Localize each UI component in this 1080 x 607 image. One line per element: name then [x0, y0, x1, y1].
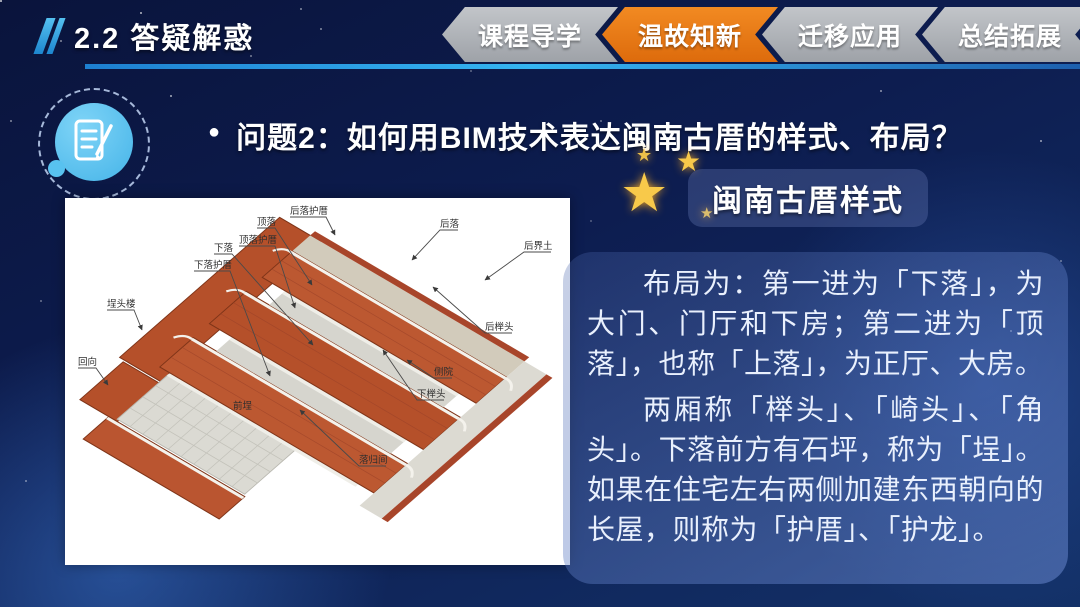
- figure-label: 下落: [214, 242, 234, 254]
- description-paragraph: 两厢称「榉头」、「崎头」、「角头」。下落前方有石坪，称为「埕」。如果在住宅左右两…: [587, 390, 1044, 550]
- figure-label: 后榉头: [485, 321, 514, 333]
- bullet-icon: ●: [208, 121, 220, 144]
- tab-summary-expansion[interactable]: 总结拓展: [922, 7, 1080, 62]
- courtyard-house-model: [65, 213, 557, 565]
- starfield-decoration: [0, 0, 2, 2]
- layout-description-panel: 布局为：第一进为「下落」，为大门、门厅和下房；第二进为「顶落」，也称「上落」，为…: [563, 252, 1068, 584]
- leader-line: [107, 310, 142, 330]
- description-paragraph: 布局为：第一进为「下落」，为大门、门厅和下房；第二进为「顶落」，也称「上落」，为…: [587, 264, 1044, 384]
- orbit-dot: [48, 160, 65, 177]
- tab-transfer-application[interactable]: 迁移应用: [762, 7, 938, 62]
- title-slash-icon: [38, 18, 64, 54]
- note-pencil-icon: [38, 88, 150, 200]
- figure-label: 下榉头: [417, 388, 446, 400]
- figure-label: 下落护厝: [194, 259, 232, 271]
- figure-label: 后落护厝: [290, 205, 328, 217]
- figure-label: 前埕: [233, 400, 253, 412]
- header-divider: [85, 64, 1080, 69]
- leader-line: [412, 230, 458, 260]
- page-title: 2.2 答疑解惑: [74, 15, 254, 57]
- star-icon: ★: [620, 166, 668, 220]
- figure-label: 落归间: [359, 454, 388, 466]
- bim-axonometric-drawing: 后落护厝 顶落 顶落护厝 下落 下落护厝 后落 后界土 埕头楼 回向 后榉头 侧…: [65, 198, 570, 565]
- tab-review-active[interactable]: 温故知新: [602, 7, 778, 62]
- bim-model-figure: 后落护厝 顶落 顶落护厝 下落 下落护厝 后落 后界土 埕头楼 回向 后榉头 侧…: [65, 198, 570, 565]
- slide: 2.2 答疑解惑 课程导学 温故知新 迁移应用 总结拓展 ● 问题2：如何用BI…: [0, 0, 1080, 607]
- star-icon: ★: [636, 146, 652, 164]
- question-text: 问题2：如何用BIM技术表达闽南古厝的样式、布局？: [236, 113, 963, 157]
- figure-label: 顶落护厝: [239, 234, 277, 246]
- figure-label: 埕头楼: [107, 298, 136, 310]
- figure-label: 回向: [78, 356, 97, 368]
- document-glyph: [73, 118, 115, 166]
- header: 2.2 答疑解惑: [38, 14, 254, 58]
- figure-label: 后界土: [524, 240, 553, 252]
- tab-course-guide[interactable]: 课程导学: [442, 7, 618, 62]
- figure-label: 后落: [440, 218, 460, 230]
- style-badge: 闽南古厝样式: [688, 169, 928, 227]
- figure-label: 侧院: [434, 366, 454, 378]
- figure-label: 顶落: [257, 216, 277, 228]
- tab-bar: 课程导学 温故知新 迁移应用 总结拓展: [458, 7, 1080, 62]
- leader-line: [485, 252, 551, 280]
